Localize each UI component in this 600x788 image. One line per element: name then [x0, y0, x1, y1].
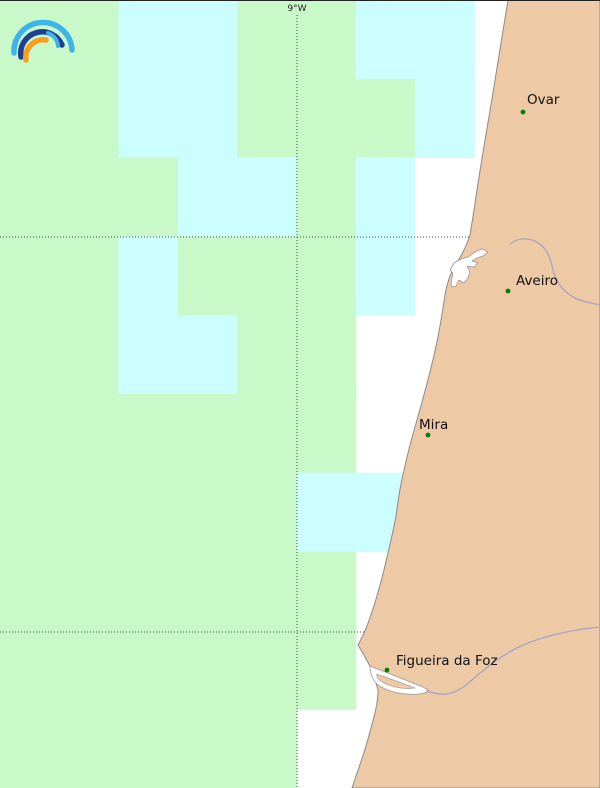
forecast-cell: [178, 473, 238, 552]
forecast-cell: [178, 0, 238, 79]
city-label: Ovar: [527, 92, 560, 108]
forecast-cell: [0, 394, 60, 473]
forecast-cell: [178, 709, 238, 788]
forecast-cell: [0, 473, 60, 552]
forecast-cell: [297, 236, 357, 315]
forecast-cell: [297, 79, 357, 158]
forecast-cell: [297, 552, 357, 631]
forecast-cell: [59, 315, 119, 394]
forecast-cell: [0, 315, 60, 394]
forecast-cell: [119, 552, 179, 631]
forecast-cell: [237, 552, 297, 631]
weather-map: OvarAveiroMiraFigueira da Foz 9°W: [0, 0, 600, 788]
forecast-cell: [178, 630, 238, 709]
forecast-cell: [119, 630, 179, 709]
city-marker: [521, 110, 526, 115]
forecast-cell: [237, 630, 297, 709]
city-marker: [385, 668, 390, 673]
forecast-cell: [297, 394, 357, 473]
forecast-cell: [0, 709, 60, 788]
forecast-cell: [0, 630, 60, 709]
forecast-cell: [0, 158, 60, 237]
forecast-cell: [59, 709, 119, 788]
forecast-cell: [59, 473, 119, 552]
forecast-cell: [119, 315, 179, 394]
forecast-cell: [119, 158, 179, 237]
city-marker: [506, 289, 511, 294]
forecast-cell: [237, 473, 297, 552]
forecast-cell: [178, 79, 238, 158]
forecast-cell: [297, 630, 357, 709]
forecast-cell: [0, 236, 60, 315]
forecast-cell: [59, 630, 119, 709]
forecast-cell: [119, 79, 179, 158]
forecast-cell: [59, 158, 119, 237]
forecast-cell: [237, 158, 297, 237]
forecast-cell: [119, 394, 179, 473]
forecast-cell: [178, 158, 238, 237]
forecast-cell: [237, 394, 297, 473]
forecast-cell: [297, 473, 357, 552]
forecast-cell: [178, 394, 238, 473]
forecast-cell: [356, 158, 416, 237]
forecast-cell: [237, 79, 297, 158]
forecast-cell: [297, 158, 357, 237]
forecast-cell: [237, 315, 297, 394]
forecast-cell: [415, 0, 475, 79]
forecast-cell: [356, 236, 416, 315]
forecast-cell: [59, 79, 119, 158]
city-marker: [426, 433, 431, 438]
forecast-cell: [415, 79, 475, 158]
forecast-cell: [119, 709, 179, 788]
forecast-cell: [119, 473, 179, 552]
forecast-cell: [0, 79, 60, 158]
forecast-cell: [59, 394, 119, 473]
map-canvas: OvarAveiroMiraFigueira da Foz 9°W: [0, 0, 600, 788]
city-label: Figueira da Foz: [396, 653, 498, 669]
forecast-cell: [59, 236, 119, 315]
forecast-cell: [237, 236, 297, 315]
city-label: Aveiro: [516, 273, 558, 289]
forecast-cell: [0, 552, 60, 631]
forecast-cell: [297, 315, 357, 394]
forecast-cell: [119, 0, 179, 79]
forecast-cell: [178, 552, 238, 631]
forecast-cell: [178, 315, 238, 394]
forecast-cell: [119, 236, 179, 315]
forecast-cell: [178, 236, 238, 315]
meridian-label: 9°W: [287, 4, 306, 14]
forecast-cell: [0, 0, 60, 79]
forecast-cell: [356, 0, 416, 79]
forecast-cell: [356, 79, 416, 158]
city-label: Mira: [419, 417, 448, 433]
forecast-cell: [59, 552, 119, 631]
forecast-cell: [237, 709, 297, 788]
